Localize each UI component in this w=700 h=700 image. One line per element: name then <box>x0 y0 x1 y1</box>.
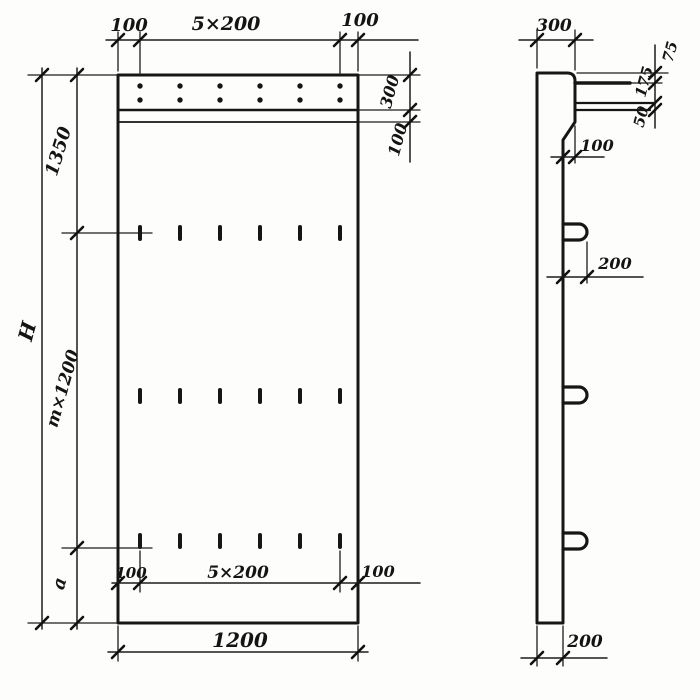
front-dimension-lines <box>42 40 420 652</box>
vent-slots-row-1 <box>138 225 342 241</box>
dim-bottom-1200: 1200 <box>212 628 268 652</box>
side-view: 300 75 175 50 100 200 200 <box>519 16 682 666</box>
dim-side-thickness-200: 200 <box>566 632 603 652</box>
front-view: 100 5×200 100 H 1350 m×1200 a 300 100 10… <box>13 10 420 661</box>
dim-side-loop-200: 200 <box>597 254 631 273</box>
dim-bottom-inner-5x200: 5×200 <box>207 563 269 583</box>
side-dimension-lines <box>519 40 655 658</box>
dim-top-5x200: 5×200 <box>192 13 261 35</box>
lifting-loop-2 <box>563 387 587 403</box>
vent-slots-row-2 <box>138 388 342 404</box>
dim-top-left-100: 100 <box>110 15 148 36</box>
dim-bottom-inner-left-100: 100 <box>115 564 147 582</box>
dim-side-175: 175 <box>631 64 656 99</box>
dim-left-1350: 1350 <box>41 124 76 179</box>
panel-drawing: 100 5×200 100 H 1350 m×1200 a 300 100 10… <box>0 0 700 700</box>
dim-top-right-100: 100 <box>341 10 379 31</box>
dim-left-H: H <box>13 318 42 344</box>
dim-bottom-inner-right-100: 100 <box>361 562 394 581</box>
dim-right-100: 100 <box>384 121 411 158</box>
drawing-sheet: 100 5×200 100 H 1350 m×1200 a 300 100 10… <box>0 0 700 700</box>
dim-left-a: a <box>48 575 71 592</box>
side-extension-lines <box>537 30 668 666</box>
panel-outline <box>118 75 358 623</box>
lifting-loop-3 <box>563 533 587 549</box>
anchor-dots <box>137 83 342 102</box>
panel-profile <box>537 73 575 623</box>
dim-side-top-300: 300 <box>536 16 572 36</box>
dim-side-step-100: 100 <box>580 136 613 155</box>
dim-right-300: 300 <box>376 73 403 110</box>
vent-slots-row-3 <box>138 533 342 549</box>
lifting-loop-1 <box>563 224 587 240</box>
dim-side-75: 75 <box>659 39 682 64</box>
